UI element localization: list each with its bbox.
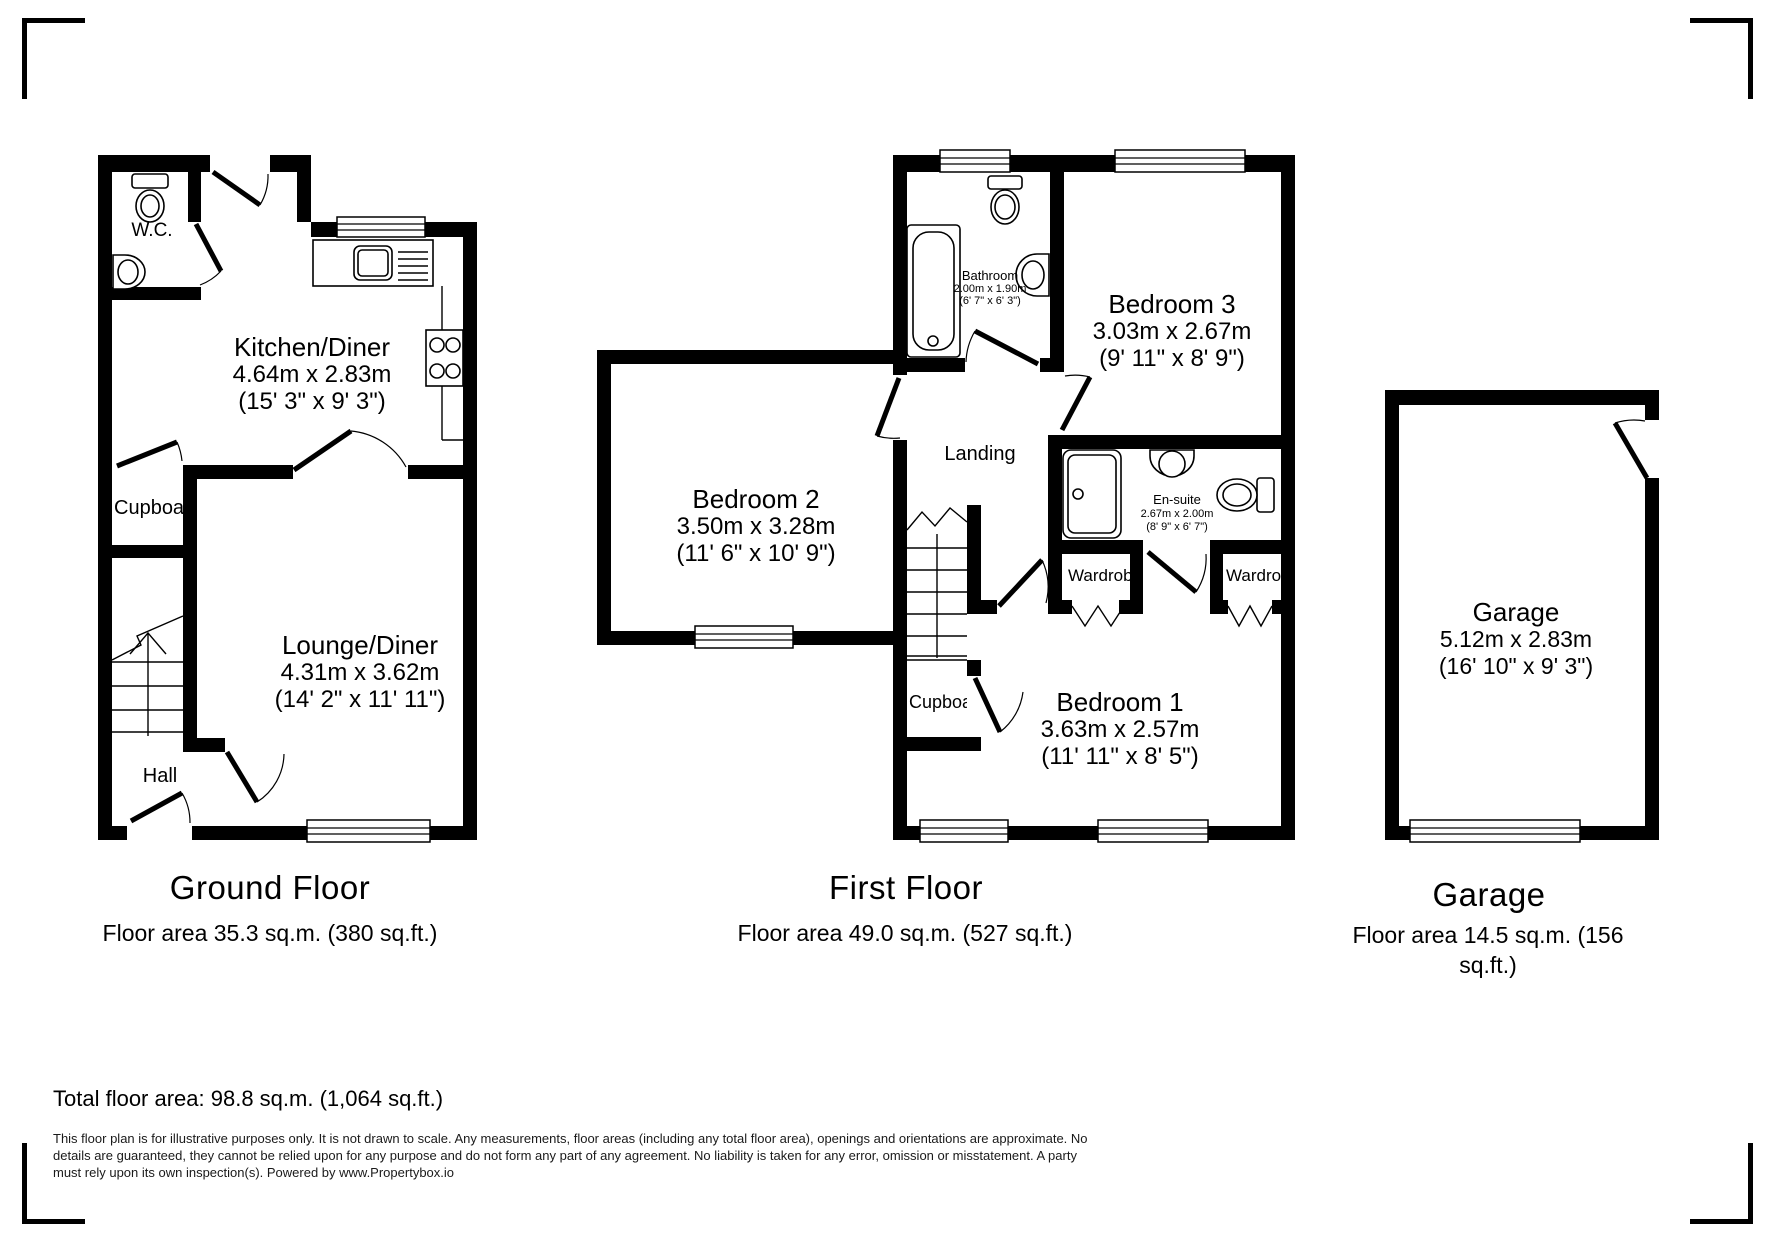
bedroom3-window	[1115, 150, 1245, 172]
bathroom-toilet-icon	[988, 176, 1022, 224]
ground-floor-area: Floor area 35.3 sq.m. (380 sq.ft.)	[103, 921, 438, 946]
room-label-ensuite-dims-ft: (8' 9" x 6' 7")	[1146, 521, 1208, 533]
shower-icon	[1063, 450, 1121, 538]
garage-area: Floor area 14.5 sq.m. (156 sq.ft.)	[1323, 921, 1653, 981]
room-label-first-cupboard: Cupboard	[909, 692, 967, 713]
room-label-kitchen-dims-ft: (15' 3" x 9' 3")	[238, 389, 386, 415]
lounge-window	[307, 820, 430, 842]
room-label-ensuite-name: En-suite	[1153, 493, 1201, 507]
room-label-kitchen-name: Kitchen/Diner	[234, 333, 390, 362]
first-floor-stairs-icon	[907, 508, 967, 660]
room-label-bathroom-dims-ft: (6' 7" x 6' 3")	[959, 295, 1021, 307]
wardrobe-left-bifold	[1072, 606, 1124, 626]
ensuite-basin-icon	[1150, 450, 1194, 477]
room-label-bedroom1-dims-ft: (11' 11" x 8' 5")	[1041, 744, 1198, 770]
room-label-bedroom3-dims-m: 3.03m x 2.67m	[1093, 319, 1252, 345]
disclaimer-text: This floor plan is for illustrative purp…	[53, 1130, 1101, 1181]
room-label-bedroom1-dims-m: 3.63m x 2.57m	[1041, 717, 1200, 743]
room-label-garage-dims-ft: (16' 10" x 9' 3")	[1439, 654, 1593, 679]
first-floor-area: Floor area 49.0 sq.m. (527 sq.ft.)	[738, 921, 1073, 946]
total-floor-area: Total floor area: 98.8 sq.m. (1,064 sq.f…	[53, 1086, 443, 1112]
room-label-wardrobe-right: Wardrobe	[1226, 566, 1281, 587]
room-label-ensuite-dims-m: 2.67m x 2.00m	[1141, 508, 1214, 520]
room-label-landing: Landing	[944, 443, 1015, 465]
bedroom2-window	[695, 626, 793, 648]
room-label-bedroom3-dims-ft: (9' 11" x 8' 9")	[1099, 346, 1245, 372]
kitchen-window	[337, 217, 425, 237]
garage-title: Garage	[1432, 877, 1545, 913]
wc-toilet-icon	[132, 174, 168, 222]
bath-icon	[907, 225, 960, 357]
room-label-garage-name: Garage	[1473, 598, 1560, 627]
room-label-lounge-dims-m: 4.31m x 3.62m	[281, 660, 440, 686]
room-label-bathroom-dims-m: 2.00m x 1.90m	[954, 283, 1027, 295]
room-label-ground-cupboard: Cupboard	[114, 497, 183, 520]
room-label-bedroom1-name: Bedroom 1	[1056, 688, 1183, 717]
garage-window	[1410, 820, 1580, 842]
wardrobe-right-bifold	[1228, 606, 1272, 626]
first-floor-title: First Floor	[829, 870, 983, 906]
room-label-lounge-dims-ft: (14' 2" x 11' 11")	[275, 687, 446, 713]
room-label-kitchen-dims-m: 4.64m x 2.83m	[233, 362, 392, 388]
room-label-bedroom2-dims-m: 3.50m x 3.28m	[677, 514, 836, 540]
kitchen-sink-icon	[313, 240, 433, 286]
room-label-lounge-name: Lounge/Diner	[282, 631, 438, 660]
ground-floor-title: Ground Floor	[170, 870, 370, 906]
room-label-garage-dims-m: 5.12m x 2.83m	[1440, 627, 1592, 652]
bedroom1-window-left	[920, 820, 1008, 842]
kitchen-hob-icon	[426, 330, 463, 386]
room-label-wc: W.C.	[131, 221, 172, 242]
bedroom1-window-right	[1098, 820, 1208, 842]
room-label-bathroom-name: Bathroom	[962, 269, 1018, 283]
bathroom-window	[940, 150, 1010, 172]
ground-stairs-icon	[112, 616, 183, 736]
room-label-bedroom3-name: Bedroom 3	[1108, 290, 1235, 319]
room-label-bedroom2-dims-ft: (11' 6" x 10' 9")	[676, 541, 835, 567]
room-label-bedroom2-name: Bedroom 2	[692, 485, 819, 514]
floorplan-page: { "floors": { "ground": { "title": "Grou…	[0, 0, 1771, 1239]
wc-basin-icon	[113, 255, 145, 289]
room-label-hall: Hall	[143, 765, 177, 787]
ensuite-toilet-icon	[1217, 478, 1274, 512]
room-label-wardrobe-left: Wardrobe	[1068, 566, 1130, 587]
